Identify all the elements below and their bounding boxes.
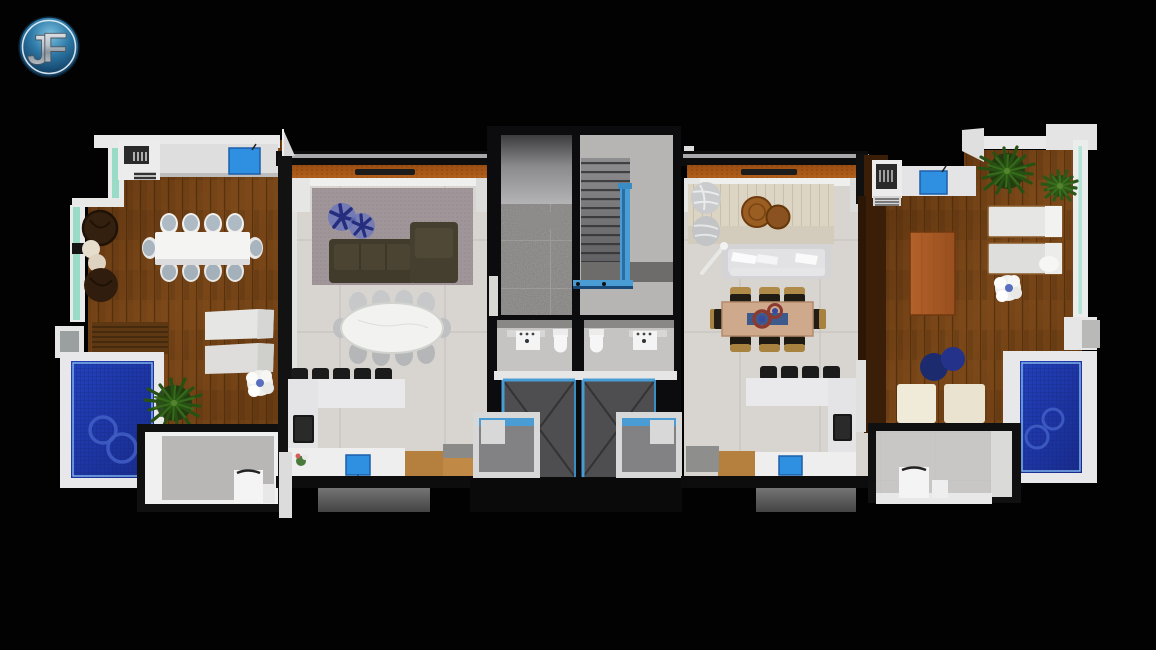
svg-text:F: F [42,24,68,71]
